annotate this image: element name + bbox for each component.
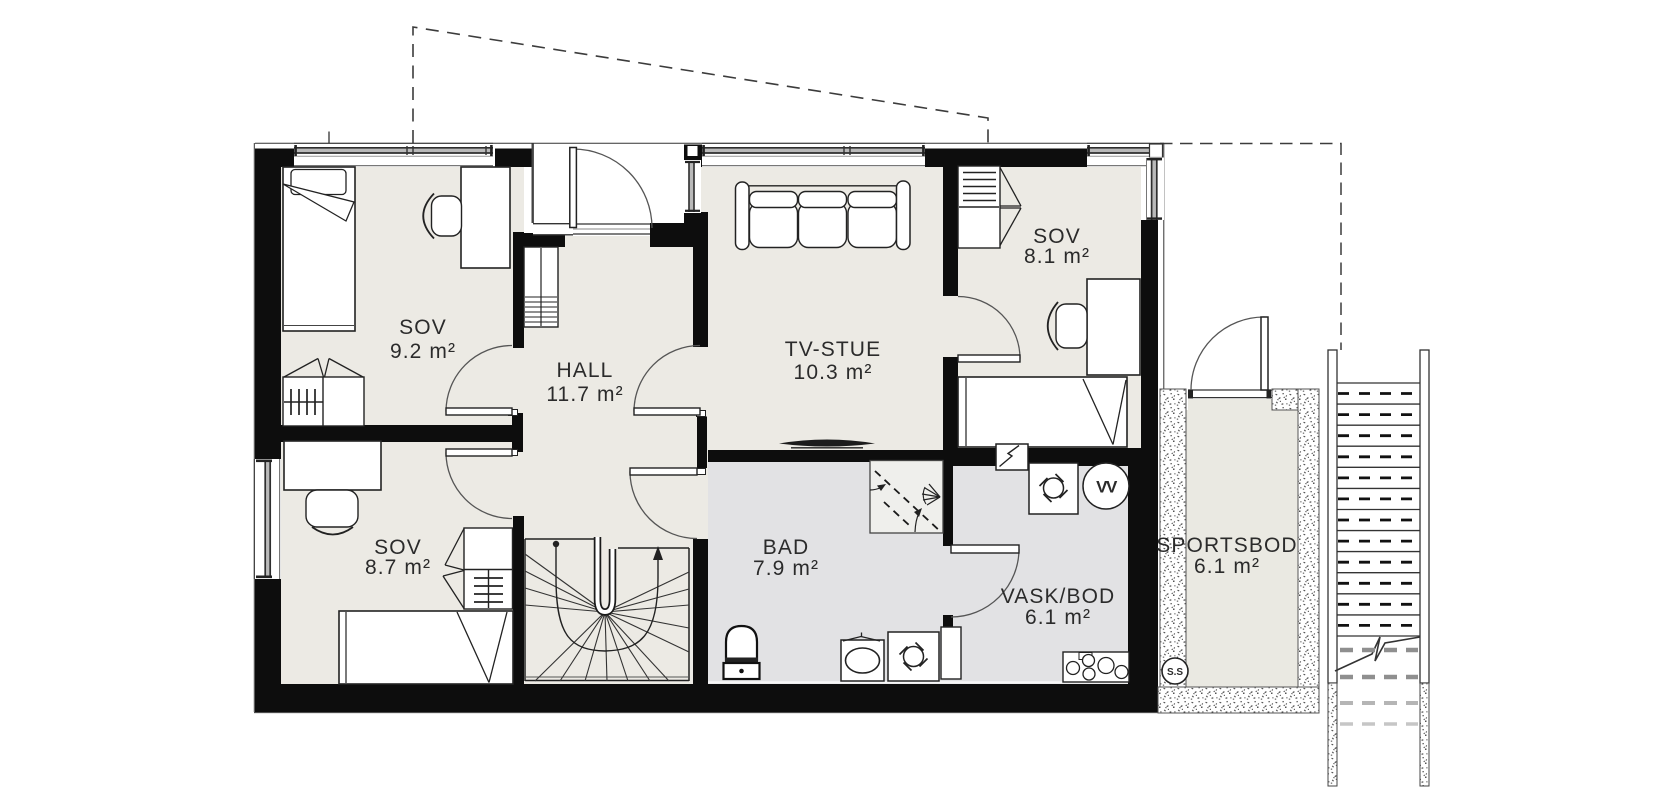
svg-text:VV: VV bbox=[1096, 478, 1118, 497]
svg-text:7.9 m²: 7.9 m² bbox=[753, 557, 819, 580]
svg-text:SOV: SOV bbox=[399, 316, 447, 339]
svg-text:BAD: BAD bbox=[763, 536, 809, 559]
svg-text:6.1 m²: 6.1 m² bbox=[1025, 606, 1091, 629]
svg-text:S.S: S.S bbox=[1167, 667, 1183, 678]
svg-text:10.3 m²: 10.3 m² bbox=[794, 361, 873, 384]
svg-text:8.7 m²: 8.7 m² bbox=[365, 556, 431, 579]
svg-text:8.1 m²: 8.1 m² bbox=[1024, 245, 1090, 268]
svg-text:VASK/BOD: VASK/BOD bbox=[1001, 585, 1116, 608]
svg-text:SPORTSBOD: SPORTSBOD bbox=[1156, 534, 1297, 557]
svg-text:6.1 m²: 6.1 m² bbox=[1194, 555, 1260, 578]
svg-text:TV-STUE: TV-STUE bbox=[785, 338, 881, 361]
svg-text:HALL: HALL bbox=[557, 359, 614, 382]
svg-text:9.2 m²: 9.2 m² bbox=[390, 340, 456, 363]
svg-text:11.7 m²: 11.7 m² bbox=[546, 383, 623, 406]
